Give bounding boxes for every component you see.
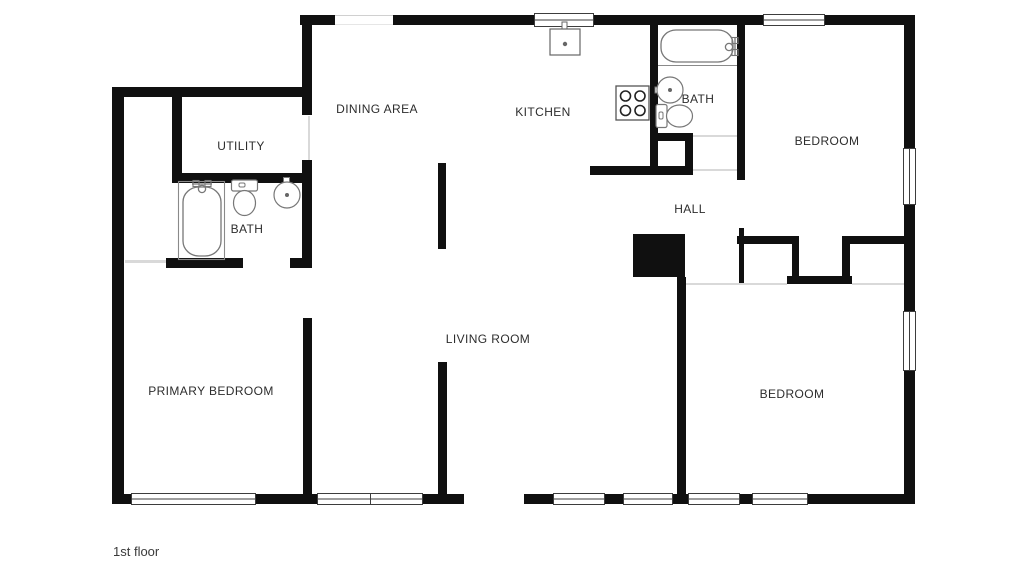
wall: [590, 166, 693, 175]
door-threshold: [686, 283, 787, 285]
wall: [302, 25, 312, 115]
window: [903, 148, 916, 205]
window: [131, 493, 256, 505]
wall: [303, 318, 312, 504]
floor-label: 1st floor: [113, 544, 159, 559]
door-threshold: [693, 135, 737, 137]
door-threshold: [125, 260, 166, 263]
wall: [112, 87, 304, 97]
window: [688, 493, 740, 505]
wall: [808, 494, 915, 504]
room-label-utility: UTILITY: [217, 139, 264, 153]
wall: [300, 15, 335, 25]
wall: [677, 277, 686, 504]
wall: [438, 163, 446, 249]
floor-plan-canvas: DINING AREA KITCHEN BATH BEDROOM UTILITY…: [0, 0, 1024, 576]
wall: [904, 205, 915, 311]
room-label-primary-bedroom: PRIMARY BEDROOM: [148, 384, 274, 398]
toilet-icon: [656, 105, 693, 128]
wall: [594, 15, 764, 25]
toilet-icon: [232, 180, 258, 216]
window: [763, 14, 825, 26]
wall: [825, 15, 915, 25]
room-label-living-room: LIVING ROOM: [446, 332, 530, 346]
wall: [737, 236, 798, 244]
window: [370, 493, 423, 505]
door-threshold: [308, 116, 310, 160]
wall: [792, 236, 799, 278]
room-label-dining-area: DINING AREA: [336, 102, 418, 116]
bathtub-icon: [658, 30, 738, 66]
wall: [904, 371, 915, 504]
window: [553, 493, 605, 505]
stove-icon: [616, 86, 649, 120]
window: [317, 493, 371, 505]
door-threshold: [852, 283, 904, 285]
wall: [524, 494, 553, 504]
wall: [172, 97, 182, 183]
wall: [393, 15, 534, 25]
window: [903, 311, 916, 371]
wall: [654, 133, 687, 141]
wall: [605, 494, 623, 504]
room-label-bedroom-lower: BEDROOM: [760, 387, 825, 401]
room-label-bedroom-upper: BEDROOM: [795, 134, 860, 148]
wall: [423, 494, 464, 504]
wall: [112, 494, 133, 504]
room-label-bath-upper: BATH: [682, 92, 715, 106]
fireplace: [633, 234, 685, 277]
window: [752, 493, 808, 505]
wall: [172, 173, 304, 183]
wall: [904, 15, 915, 148]
sink-icon: [655, 77, 683, 103]
wall: [112, 87, 124, 504]
wall: [650, 25, 658, 173]
window: [534, 13, 594, 27]
room-label-bath-lower: BATH: [231, 222, 264, 236]
room-label-hall: HALL: [674, 202, 706, 216]
wall-opening: [335, 15, 393, 25]
window: [623, 493, 673, 505]
wall: [166, 258, 243, 268]
room-label-kitchen: KITCHEN: [515, 105, 570, 119]
wall: [438, 362, 447, 494]
door-threshold: [693, 169, 737, 171]
bathtub-icon: [179, 181, 225, 260]
wall: [740, 494, 752, 504]
wall: [737, 25, 745, 180]
wall: [685, 133, 693, 173]
wall: [290, 258, 312, 268]
wall: [842, 236, 907, 244]
